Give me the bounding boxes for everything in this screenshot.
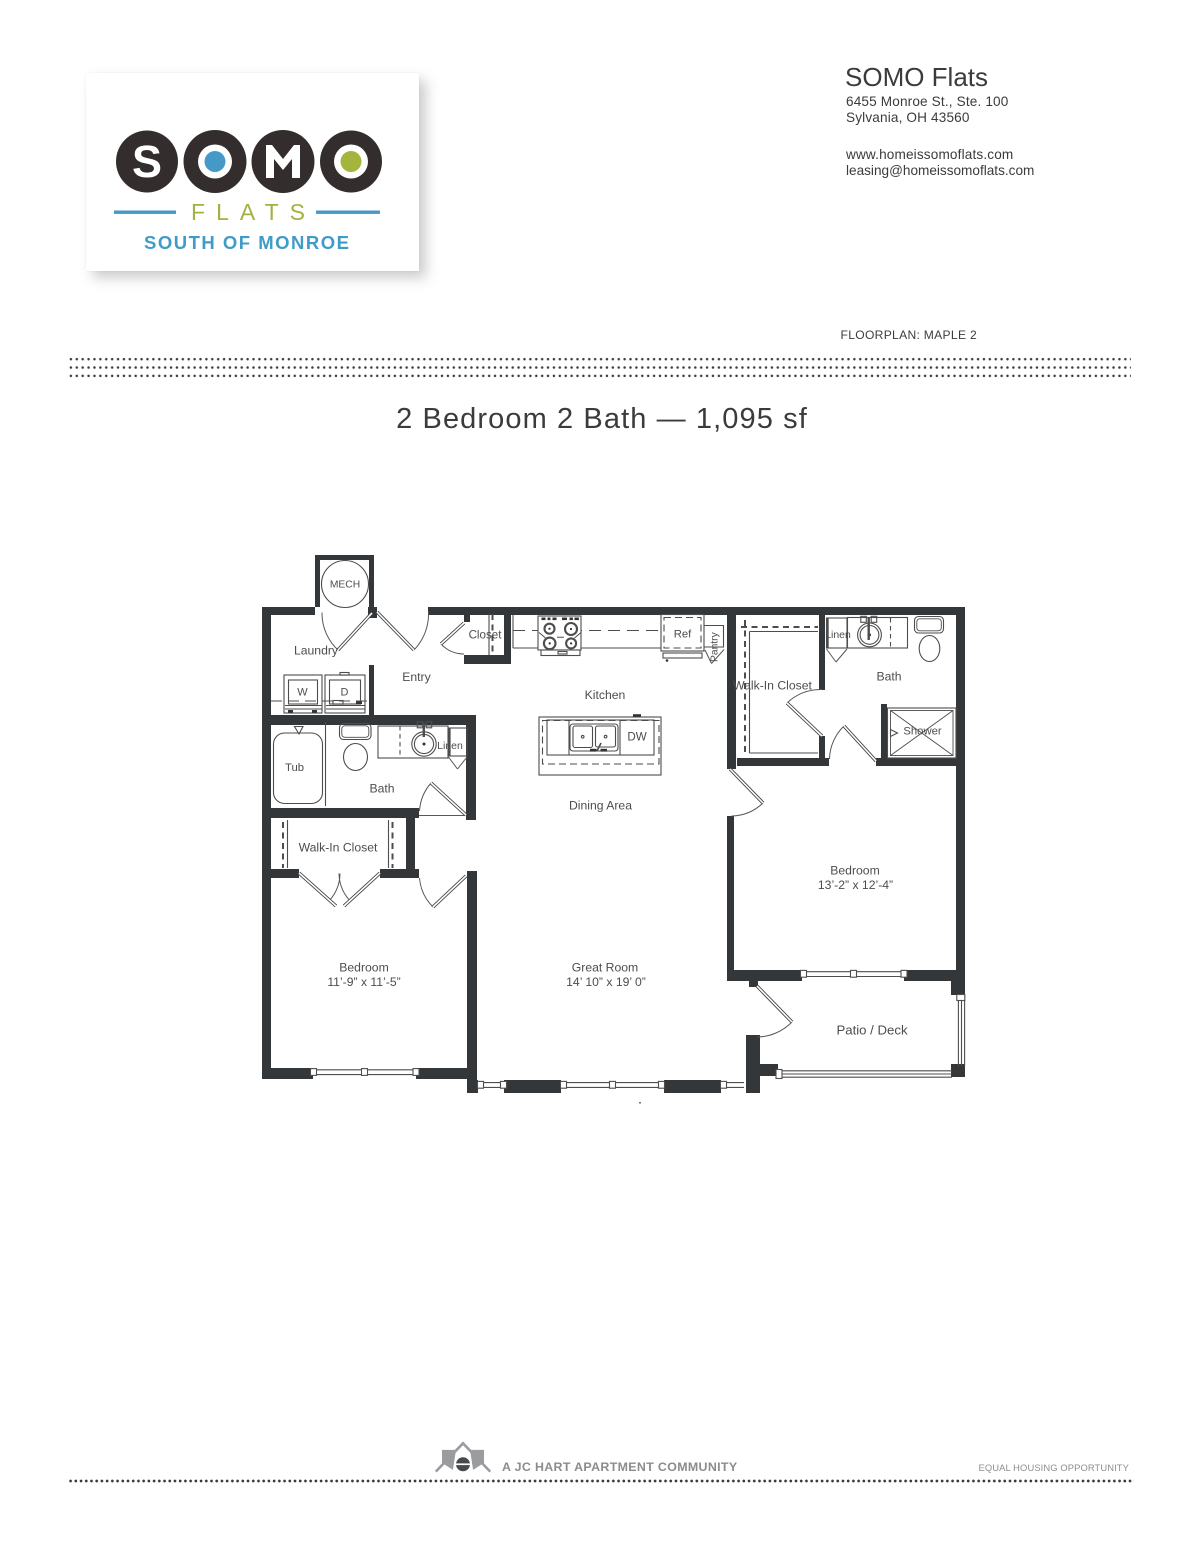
svg-text:Bath: Bath [369,782,394,796]
svg-text:Pantry: Pantry [710,631,721,662]
svg-text:Linen: Linen [437,740,463,752]
svg-text:14’ 10” x 19’ 0”: 14’ 10” x 19’ 0” [566,975,646,989]
svg-text:Dining Area: Dining Area [569,799,632,813]
svg-text:DW: DW [627,731,646,744]
svg-text:Bedroom: Bedroom [339,961,388,975]
svg-text:Ref: Ref [674,629,692,641]
svg-text:MECH: MECH [330,580,360,591]
svg-text:W: W [297,687,308,699]
svg-text:Bedroom: Bedroom [830,864,879,878]
svg-text:Shower: Shower [903,726,942,738]
svg-text:Walk-In Closet: Walk-In Closet [733,679,812,693]
svg-text:Closet: Closet [469,629,503,642]
svg-text:Kitchen: Kitchen [585,688,626,702]
svg-text:Patio / Deck: Patio / Deck [836,1023,908,1038]
svg-text:11’-9” x 11’-5”: 11’-9” x 11’-5” [327,975,400,989]
svg-text:D: D [341,687,349,699]
svg-text:13’-2” x 12’-4”: 13’-2” x 12’-4” [818,878,893,892]
svg-text:Great Room: Great Room [572,961,638,975]
svg-text:Entry: Entry [402,670,431,684]
svg-text:Bath: Bath [876,670,901,684]
svg-text:Tub: Tub [285,762,304,774]
svg-text:Linen: Linen [825,629,851,641]
svg-text:Laundry: Laundry [294,644,339,658]
svg-text:Walk-In Closet: Walk-In Closet [299,841,378,855]
